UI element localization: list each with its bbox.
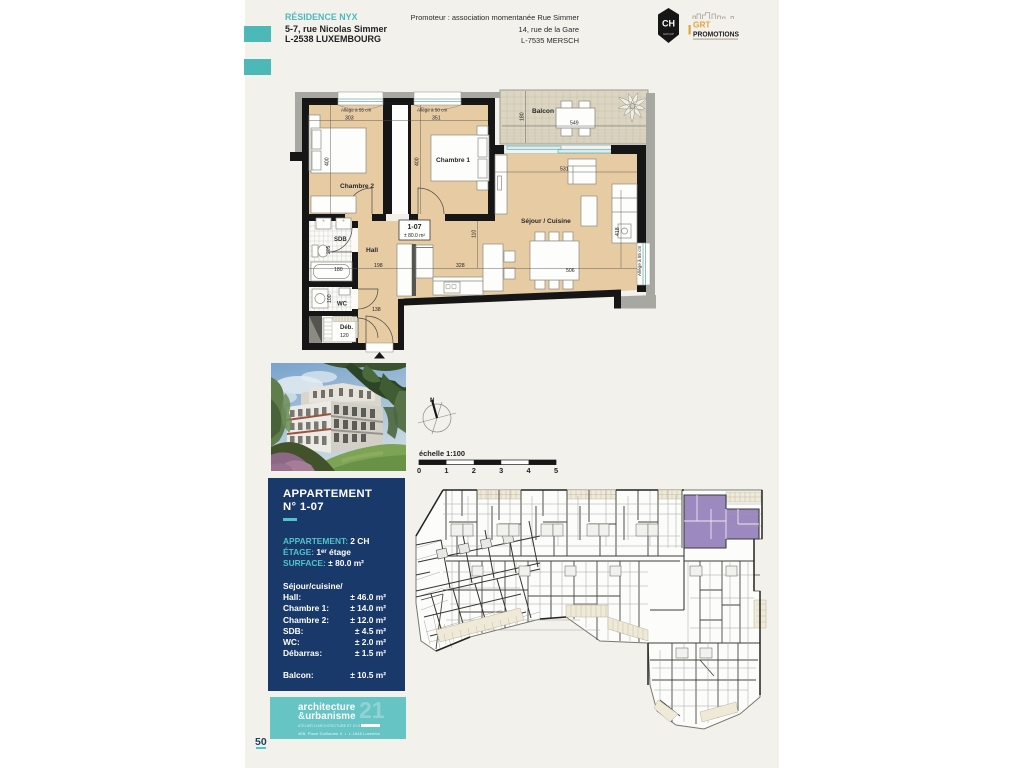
svg-text:0: 0: [417, 466, 421, 475]
svg-text:GRT: GRT: [693, 21, 711, 30]
svg-text:1-07: 1-07: [407, 224, 421, 231]
svg-text:Hall: Hall: [366, 247, 378, 254]
svg-text:N: N: [430, 398, 434, 404]
svg-text:549: 549: [570, 121, 579, 127]
svg-text:PROMOTIONS: PROMOTIONS: [693, 29, 739, 38]
svg-text:418: 418: [615, 227, 621, 236]
svg-text:Chambre 2: Chambre 2: [340, 183, 374, 190]
svg-text:WC: WC: [337, 302, 348, 308]
svg-text:1: 1: [444, 466, 448, 475]
svg-text:400: 400: [415, 157, 421, 166]
svg-text:GROUP: GROUP: [663, 32, 674, 36]
svg-text:échelle 1:100: échelle 1:100: [419, 449, 465, 458]
svg-text:303: 303: [345, 116, 354, 122]
svg-text:CH: CH: [662, 19, 675, 29]
svg-text:5: 5: [554, 466, 558, 475]
svg-text:120: 120: [340, 333, 349, 339]
svg-text:Allège à 50 cm: Allège à 50 cm: [417, 108, 448, 113]
svg-text:Séjour / Cuisine: Séjour / Cuisine: [521, 218, 571, 225]
svg-text:Balcon: Balcon: [532, 108, 554, 115]
svg-text:4: 4: [527, 466, 532, 475]
svg-text:110: 110: [472, 230, 478, 238]
svg-text:138: 138: [372, 307, 381, 313]
svg-text:100: 100: [327, 294, 333, 303]
svg-text:351: 351: [432, 116, 441, 122]
svg-text:SDB: SDB: [334, 237, 347, 243]
svg-text:Chambre 1: Chambre 1: [436, 157, 470, 164]
svg-text:Déb.: Déb.: [340, 325, 353, 331]
svg-text:Allège à 55 cm: Allège à 55 cm: [637, 245, 642, 276]
svg-text:2: 2: [472, 466, 476, 475]
svg-text:180: 180: [334, 267, 343, 273]
svg-text:531: 531: [560, 167, 569, 173]
svg-text:198: 198: [374, 263, 383, 269]
svg-text:± 80.0 m²: ± 80.0 m²: [404, 233, 425, 239]
svg-text:3: 3: [499, 466, 503, 475]
svg-text:180: 180: [520, 112, 526, 121]
svg-text:328: 328: [456, 263, 465, 269]
svg-text:Allège à 55 cm: Allège à 55 cm: [341, 108, 372, 113]
svg-text:400: 400: [325, 157, 331, 166]
svg-text:506: 506: [566, 268, 575, 274]
svg-text:205: 205: [326, 245, 332, 254]
